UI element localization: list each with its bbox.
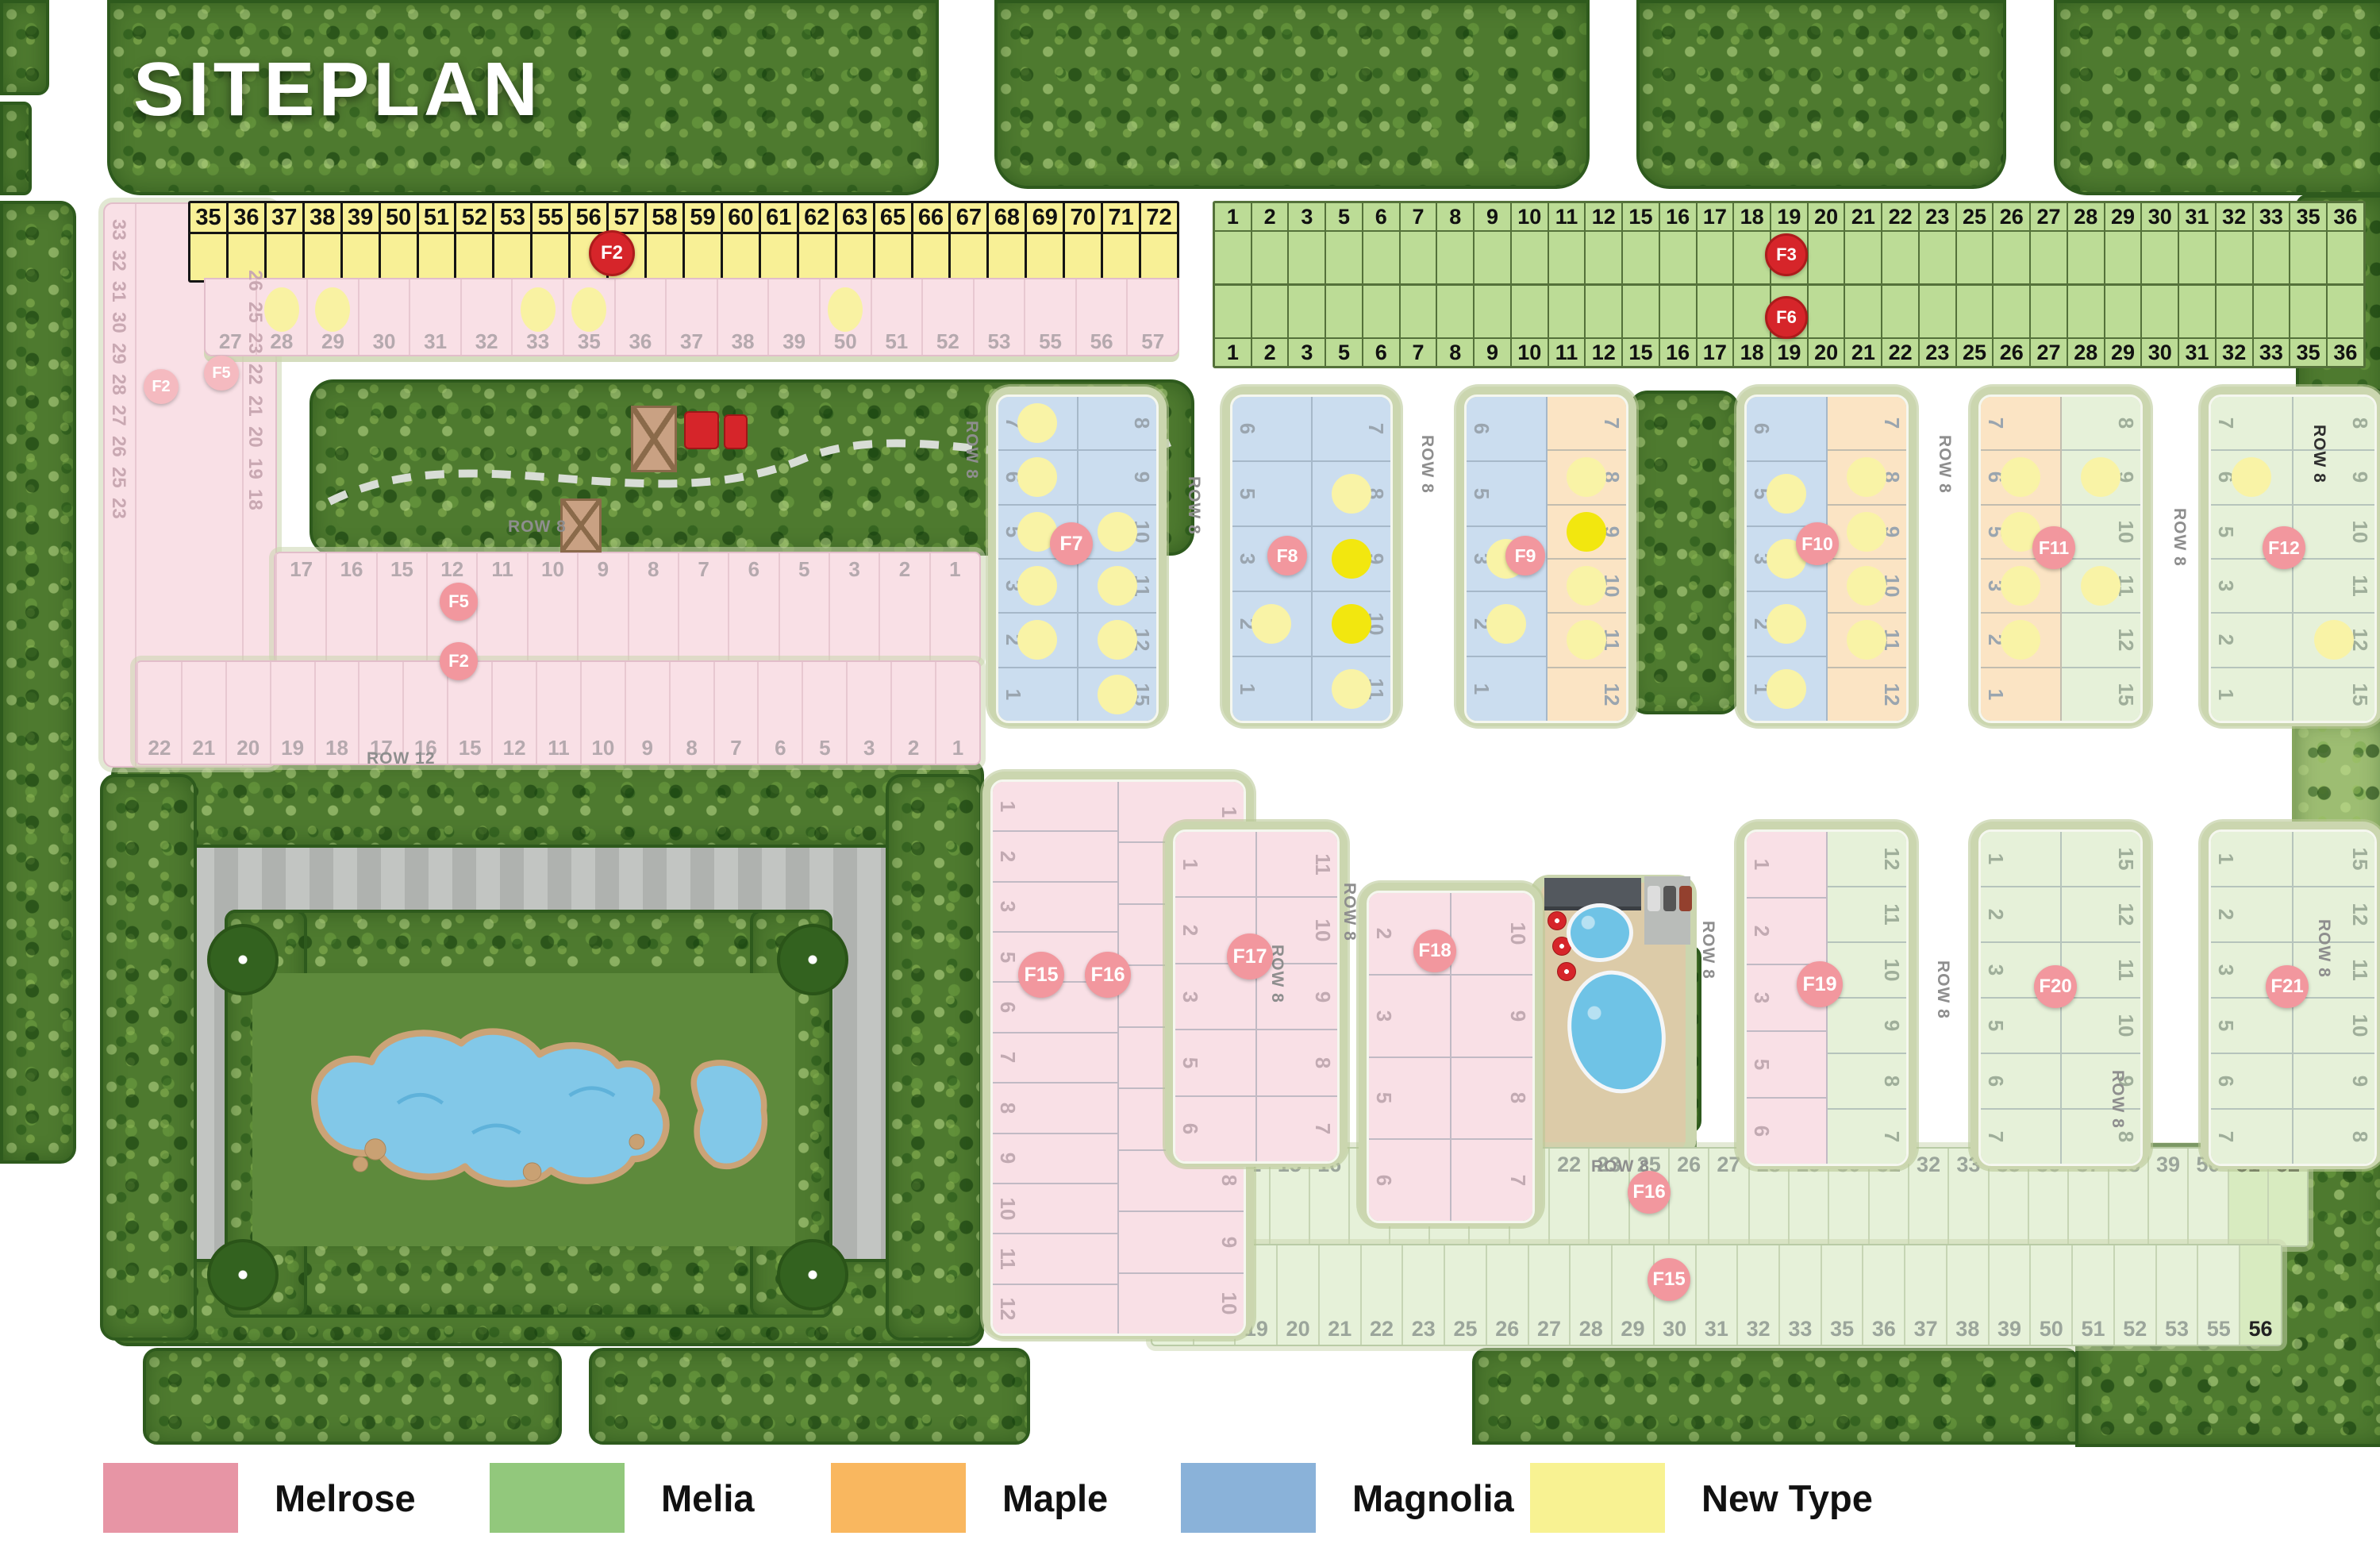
lot[interactable]: 23 [104, 493, 133, 524]
lot[interactable]: 37 [665, 279, 717, 355]
lot[interactable]: 39 [340, 203, 379, 280]
lot[interactable]: 12 [1828, 832, 1907, 886]
lot[interactable]: 10 [1119, 1272, 1244, 1334]
lot[interactable]: 12 [1078, 612, 1157, 666]
block-marker[interactable]: F9 [1505, 536, 1545, 575]
lot[interactable]: 57 [1126, 279, 1178, 355]
lot[interactable]: 33 [1778, 1245, 1821, 1345]
lot[interactable]: 23 [1918, 286, 1955, 366]
lot[interactable]: 5 [1325, 286, 1362, 366]
lot[interactable]: 9 [1119, 1211, 1244, 1272]
lot[interactable]: 6 [2211, 449, 2292, 503]
lot[interactable]: 8 [2293, 1108, 2374, 1164]
lot[interactable]: 10 [580, 662, 625, 764]
lot[interactable]: 7 [2211, 397, 2292, 449]
lot[interactable]: 26 [1992, 286, 2029, 366]
lot[interactable]: 8 [2293, 397, 2374, 449]
lot[interactable]: 22 [1881, 286, 1918, 366]
lot[interactable]: 20 [1807, 203, 1844, 283]
lot[interactable]: 31 [2178, 286, 2215, 366]
lot[interactable]: 31 [2178, 203, 2215, 283]
lot[interactable]: 26 [240, 265, 269, 296]
lot[interactable]: 11 [536, 662, 580, 764]
lot[interactable]: 11 [1828, 886, 1907, 941]
lot[interactable]: 15 [2062, 832, 2141, 886]
block-marker[interactable]: F17 [1227, 933, 1273, 980]
lot[interactable]: 2 [1981, 886, 2060, 941]
lot[interactable]: 1 [993, 782, 1117, 830]
lot[interactable]: 17 [275, 553, 325, 662]
lot[interactable]: 17 [1696, 286, 1733, 366]
lot[interactable]: 26 [1668, 1149, 1708, 1245]
lot[interactable]: 5 [1747, 460, 1826, 525]
lot[interactable]: 51 [871, 279, 922, 355]
lot[interactable]: 5 [1175, 1029, 1255, 1095]
block-marker[interactable]: F5 [204, 356, 239, 391]
lot[interactable]: 2 [1251, 286, 1288, 366]
lot[interactable]: 38 [302, 203, 340, 280]
lot[interactable]: 9 [2062, 1053, 2141, 1108]
lot[interactable]: 26 [104, 431, 133, 462]
lot[interactable]: 9 [993, 1133, 1117, 1183]
lot[interactable]: 22 [136, 662, 181, 764]
lot[interactable]: 16 [1659, 203, 1696, 283]
lot[interactable]: 52 [454, 203, 492, 280]
lot[interactable]: 10 [527, 553, 577, 662]
lot[interactable]: 12 [2293, 612, 2374, 666]
lot[interactable]: 30 [104, 307, 133, 338]
lot[interactable]: 60 [721, 203, 759, 280]
lot[interactable]: 8 [1257, 1029, 1337, 1095]
lot[interactable]: 19 [270, 662, 314, 764]
block-marker[interactable]: F2 [589, 230, 635, 276]
lot[interactable]: 36 [614, 279, 666, 355]
lot[interactable]: 33 [2252, 203, 2290, 283]
lot[interactable]: 7 [713, 662, 758, 764]
lot[interactable]: 9 [1828, 504, 1907, 558]
lot[interactable]: 6 [1362, 286, 1399, 366]
lot[interactable]: 11 [2062, 558, 2141, 612]
lot[interactable]: 39 [767, 279, 819, 355]
lot[interactable]: 35 [2289, 203, 2326, 283]
lot[interactable]: 27 [2029, 286, 2067, 366]
block-marker[interactable]: F2 [144, 369, 179, 404]
lot[interactable]: 8 [1436, 203, 1473, 283]
lot[interactable]: 7 [1399, 286, 1436, 366]
lot[interactable]: 17 [358, 662, 402, 764]
lot[interactable]: 21 [1844, 203, 1881, 283]
lot[interactable]: 2 [1981, 612, 2060, 666]
block-marker[interactable]: F19 [1797, 961, 1843, 1007]
lot[interactable]: 2 [1251, 203, 1288, 283]
lot[interactable]: 3 [998, 558, 1077, 612]
lot[interactable]: 7 [1399, 203, 1436, 283]
lot[interactable]: 7 [1451, 1138, 1532, 1221]
lot[interactable]: 1 [1175, 832, 1255, 896]
lot[interactable]: 20 [1276, 1245, 1318, 1345]
lot[interactable]: 22 [1881, 203, 1918, 283]
block-marker[interactable]: F18 [1413, 930, 1456, 972]
lot[interactable]: 9 [1313, 525, 1391, 591]
lot[interactable]: 15 [2293, 832, 2374, 886]
lot[interactable]: 3 [1287, 286, 1325, 366]
lot[interactable]: 9 [577, 553, 627, 662]
lot[interactable]: 16 [1659, 286, 1696, 366]
block-marker[interactable]: F7 [1050, 522, 1093, 565]
lot[interactable]: 39 [1988, 1245, 2030, 1345]
lot[interactable]: 56 [1075, 279, 1127, 355]
lot[interactable]: 55 [2197, 1245, 2239, 1345]
lot[interactable]: 2 [2211, 886, 2292, 941]
lot[interactable]: 29 [1611, 1245, 1653, 1345]
lot[interactable]: 29 [2104, 286, 2141, 366]
block-marker[interactable]: F11 [2032, 526, 2075, 569]
lot[interactable]: 28 [2067, 286, 2104, 366]
lot[interactable]: 25 [1955, 286, 1993, 366]
lot[interactable]: 10 [1510, 286, 1548, 366]
lot[interactable]: 9 [1828, 997, 1907, 1053]
lot[interactable]: 37 [1904, 1245, 1946, 1345]
lot[interactable]: 18 [240, 484, 269, 515]
block-marker[interactable]: F5 [440, 583, 478, 621]
lot[interactable]: 1 [1467, 656, 1546, 721]
lot[interactable]: 67 [948, 203, 986, 280]
lot[interactable]: 6 [1362, 203, 1399, 283]
lot[interactable]: 32 [1908, 1149, 1947, 1245]
lot[interactable]: 71 [1101, 203, 1139, 280]
block-marker[interactable]: F21 [2266, 965, 2309, 1008]
lot[interactable]: 12 [1548, 667, 1627, 721]
block-marker[interactable]: F20 [2034, 965, 2077, 1008]
lot[interactable]: 62 [797, 203, 835, 280]
lot[interactable]: 6 [1747, 1097, 1826, 1164]
lot[interactable]: 63 [835, 203, 873, 280]
lot[interactable]: 38 [717, 279, 768, 355]
lot[interactable]: 7 [1981, 1108, 2060, 1164]
lot[interactable]: 69 [1025, 203, 1063, 280]
lot[interactable]: 12 [1584, 286, 1621, 366]
lot[interactable]: 65 [873, 203, 911, 280]
lot[interactable]: 1 [2211, 832, 2292, 886]
lot[interactable]: 7 [1313, 397, 1391, 460]
lot[interactable]: 7 [1981, 397, 2060, 449]
lot[interactable]: 29 [2104, 203, 2141, 283]
lot[interactable]: 11 [1313, 656, 1391, 721]
lot[interactable]: 10 [2293, 504, 2374, 558]
lot[interactable]: 50 [819, 279, 871, 355]
lot[interactable]: 3 [846, 662, 890, 764]
lot[interactable]: 31 [409, 279, 460, 355]
lot[interactable]: 7 [1828, 397, 1907, 449]
lot[interactable]: 11 [1548, 612, 1627, 666]
lot[interactable]: 1 [1981, 832, 2060, 886]
lot[interactable]: 72 [1139, 203, 1177, 280]
lot[interactable]: 1 [1981, 667, 2060, 721]
block-marker[interactable]: F8 [1267, 536, 1307, 575]
lot[interactable]: 9 [1473, 286, 1510, 366]
lot[interactable]: 9 [1473, 203, 1510, 283]
lot[interactable]: 6 [998, 449, 1077, 503]
lot[interactable]: 11 [2293, 558, 2374, 612]
lot[interactable]: 10 [2062, 997, 2141, 1053]
lot[interactable]: 2 [1747, 591, 1826, 656]
lot[interactable]: 7 [2211, 1108, 2292, 1164]
lot[interactable]: 2 [890, 662, 935, 764]
lot[interactable]: 9 [1548, 504, 1627, 558]
lot[interactable]: 21 [1844, 286, 1881, 366]
lot[interactable]: 2 [993, 830, 1117, 880]
lot[interactable]: 70 [1063, 203, 1101, 280]
lot[interactable]: 11 [1257, 832, 1337, 896]
lot[interactable]: 8 [1548, 449, 1627, 503]
lot[interactable]: 9 [625, 662, 669, 764]
lot[interactable]: 29 [306, 279, 358, 355]
lot[interactable]: 38 [1946, 1245, 1988, 1345]
lot[interactable]: 15 [376, 553, 426, 662]
lot[interactable]: 10 [1451, 893, 1532, 974]
lot[interactable]: 53 [973, 279, 1025, 355]
lot[interactable]: 8 [1078, 397, 1157, 449]
lot[interactable]: 36 [2326, 203, 2363, 283]
lot[interactable]: 11 [476, 553, 526, 662]
lot[interactable]: 21 [181, 662, 225, 764]
lot[interactable]: 52 [2113, 1245, 2155, 1345]
lot[interactable]: 58 [644, 203, 682, 280]
lot[interactable]: 7 [678, 553, 728, 662]
lot[interactable]: 21 [1318, 1245, 1360, 1345]
lot[interactable]: 2 [879, 553, 929, 662]
lot[interactable]: 59 [682, 203, 721, 280]
lot[interactable]: 1 [1215, 286, 1251, 366]
lot[interactable]: 7 [998, 397, 1077, 449]
lot[interactable]: 39 [2147, 1149, 2187, 1245]
lot[interactable]: 6 [1747, 397, 1826, 460]
lot[interactable]: 6 [1232, 397, 1311, 460]
lot[interactable]: 25 [1955, 203, 1993, 283]
lot[interactable]: 27 [104, 400, 133, 431]
lot[interactable]: 1 [929, 553, 979, 662]
block-marker[interactable]: F16 [1085, 952, 1131, 998]
lot[interactable]: 3 [993, 881, 1117, 931]
lot[interactable]: 23 [1401, 1245, 1444, 1345]
lot[interactable]: 12 [2062, 886, 2141, 941]
lot[interactable]: 11 [993, 1233, 1117, 1283]
lot[interactable]: 50 [379, 203, 417, 280]
lot[interactable]: 26 [1486, 1245, 1528, 1345]
lot[interactable]: 8 [669, 662, 713, 764]
lot[interactable]: 5 [1232, 460, 1311, 525]
lot[interactable]: 33 [511, 279, 563, 355]
lot[interactable]: 66 [911, 203, 949, 280]
lot[interactable]: 3 [1287, 203, 1325, 283]
lot[interactable]: 6 [1369, 1138, 1450, 1221]
lot[interactable]: 23 [240, 328, 269, 359]
lot[interactable]: 33 [2252, 286, 2290, 366]
lot[interactable]: 22 [1548, 1149, 1588, 1245]
lot[interactable]: 32 [104, 245, 133, 276]
lot[interactable]: 15 [2062, 667, 2141, 721]
lot[interactable]: 35 [2289, 286, 2326, 366]
lot[interactable]: 33 [104, 214, 133, 245]
block-marker[interactable]: F15 [1648, 1258, 1690, 1301]
lot[interactable]: 18 [1732, 286, 1770, 366]
lot[interactable]: 11 [1078, 558, 1157, 612]
lot[interactable]: 15 [1621, 286, 1659, 366]
lot[interactable]: 2 [1467, 591, 1546, 656]
lot[interactable]: 55 [1024, 279, 1075, 355]
lot[interactable]: 25 [240, 296, 269, 327]
lot[interactable]: 1 [1747, 832, 1826, 897]
lot[interactable]: 11 [1828, 612, 1907, 666]
lot[interactable]: 21 [240, 391, 269, 421]
lot[interactable]: 16 [325, 553, 375, 662]
lot[interactable]: 6 [757, 662, 802, 764]
lot[interactable]: 28 [1569, 1245, 1611, 1345]
lot[interactable]: 32 [460, 279, 512, 355]
lot[interactable]: 51 [417, 203, 455, 280]
lot[interactable]: 7 [993, 1032, 1117, 1082]
lot[interactable]: 27 [1528, 1245, 1570, 1345]
lot[interactable]: 11 [1548, 286, 1585, 366]
lot[interactable]: 31 [104, 276, 133, 307]
block-marker[interactable]: F12 [2263, 526, 2305, 569]
lot[interactable]: 1 [998, 667, 1077, 721]
lot[interactable]: 32 [2215, 286, 2252, 366]
lot[interactable]: 52 [921, 279, 973, 355]
lot[interactable]: 7 [1828, 1108, 1907, 1164]
lot[interactable]: 35 [190, 203, 226, 280]
lot[interactable]: 6 [1981, 1053, 2060, 1108]
lot[interactable]: 16 [402, 662, 447, 764]
lot[interactable]: 56 [2239, 1245, 2281, 1345]
lot[interactable]: 53 [2155, 1245, 2197, 1345]
lot[interactable]: 8 [1313, 460, 1391, 525]
lot[interactable]: 1 [1232, 656, 1311, 721]
lot[interactable]: 55 [530, 203, 568, 280]
lot[interactable]: 8 [993, 1082, 1117, 1132]
lot[interactable]: 6 [1467, 397, 1546, 460]
lot[interactable]: 11 [1548, 203, 1585, 283]
lot[interactable]: 15 [1078, 667, 1157, 721]
lot[interactable]: 28 [2067, 203, 2104, 283]
lot[interactable]: 9 [2293, 449, 2374, 503]
lot[interactable]: 10 [1510, 203, 1548, 283]
lot[interactable]: 18 [1732, 203, 1770, 283]
lot[interactable]: 35 [1821, 1245, 1863, 1345]
lot[interactable]: 12 [993, 1284, 1117, 1334]
lot[interactable]: 68 [986, 203, 1025, 280]
lot[interactable]: 19 [240, 452, 269, 483]
lot[interactable]: 22 [240, 359, 269, 390]
lot[interactable]: 9 [1078, 449, 1157, 503]
lot[interactable]: 10 [2293, 997, 2374, 1053]
lot[interactable]: 12 [1828, 667, 1907, 721]
lot[interactable]: 9 [2293, 1053, 2374, 1108]
lot[interactable]: 29 [104, 338, 133, 369]
lot[interactable]: 23 [1918, 203, 1955, 283]
lot[interactable]: 31 [1695, 1245, 1737, 1345]
block-marker[interactable]: F2 [440, 642, 478, 680]
lot[interactable]: 5 [1325, 203, 1362, 283]
lot[interactable]: 12 [491, 662, 536, 764]
lot[interactable]: 6 [1175, 1095, 1255, 1161]
lot[interactable]: 8 [628, 553, 678, 662]
lot[interactable]: 20 [225, 662, 270, 764]
lot[interactable]: 51 [2071, 1245, 2113, 1345]
block-marker[interactable]: F10 [1796, 522, 1839, 565]
lot[interactable]: 5 [779, 553, 829, 662]
lot[interactable]: 10 [1828, 558, 1907, 612]
lot[interactable]: 2 [998, 612, 1077, 666]
lot[interactable]: 8 [1828, 449, 1907, 503]
block-marker[interactable]: F3 [1765, 233, 1808, 276]
lot[interactable]: 30 [358, 279, 409, 355]
lot[interactable]: 3 [829, 553, 879, 662]
lot[interactable]: 26 [1992, 203, 2029, 283]
lot[interactable]: 15 [2293, 667, 2374, 721]
lot[interactable]: 22 [1360, 1245, 1402, 1345]
lot[interactable]: 30 [2140, 286, 2178, 366]
block-marker[interactable]: F6 [1765, 296, 1808, 339]
lot[interactable]: 1 [1747, 656, 1826, 721]
block-marker[interactable]: F15 [1018, 952, 1064, 998]
lot[interactable]: 10 [993, 1183, 1117, 1233]
lot[interactable]: 6 [2211, 1053, 2292, 1108]
lot[interactable]: 9 [2062, 449, 2141, 503]
lot[interactable]: 7 [1548, 397, 1627, 449]
lot[interactable]: 20 [240, 421, 269, 452]
lot[interactable]: 7 [1257, 1095, 1337, 1161]
lot[interactable]: 3 [1369, 974, 1450, 1057]
lot[interactable]: 50 [2029, 1245, 2071, 1345]
lot[interactable]: 1 [1215, 203, 1251, 283]
lot[interactable]: 5 [1467, 460, 1546, 525]
lot[interactable]: 5 [1747, 1030, 1826, 1097]
lot[interactable]: 2 [1232, 591, 1311, 656]
lot[interactable]: 12 [1584, 203, 1621, 283]
lot[interactable]: 8 [2062, 1108, 2141, 1164]
lot[interactable]: 36 [1862, 1245, 1904, 1345]
lot[interactable]: 9 [1451, 974, 1532, 1057]
lot[interactable]: 5 [1369, 1057, 1450, 1139]
lot[interactable]: 10 [1313, 591, 1391, 656]
lot[interactable]: 28 [104, 369, 133, 400]
lot[interactable]: 5 [802, 662, 846, 764]
lot[interactable]: 2 [2211, 612, 2292, 666]
lot[interactable]: 8 [1828, 1053, 1907, 1108]
lot[interactable]: 1 [2211, 667, 2292, 721]
lot[interactable]: 6 [728, 553, 778, 662]
lot[interactable]: 30 [2140, 203, 2178, 283]
lot[interactable]: 6 [1981, 449, 2060, 503]
lot[interactable]: 25 [1444, 1245, 1486, 1345]
lot[interactable]: 12 [2062, 612, 2141, 666]
lot[interactable]: 37 [264, 203, 302, 280]
lot[interactable]: 32 [1736, 1245, 1778, 1345]
lot[interactable]: 27 [1708, 1149, 1748, 1245]
lot[interactable]: 25 [104, 462, 133, 493]
lot[interactable]: 32 [2215, 203, 2252, 283]
lot[interactable]: 36 [2326, 286, 2363, 366]
lot[interactable]: 20 [1807, 286, 1844, 366]
lot[interactable]: 1 [935, 662, 979, 764]
lot[interactable]: 8 [1451, 1057, 1532, 1139]
lot[interactable]: 2 [1747, 897, 1826, 964]
lot[interactable]: 12 [2293, 886, 2374, 941]
lot[interactable]: 27 [2029, 203, 2067, 283]
lot[interactable]: 17 [1696, 203, 1733, 283]
lot[interactable]: 8 [1436, 286, 1473, 366]
